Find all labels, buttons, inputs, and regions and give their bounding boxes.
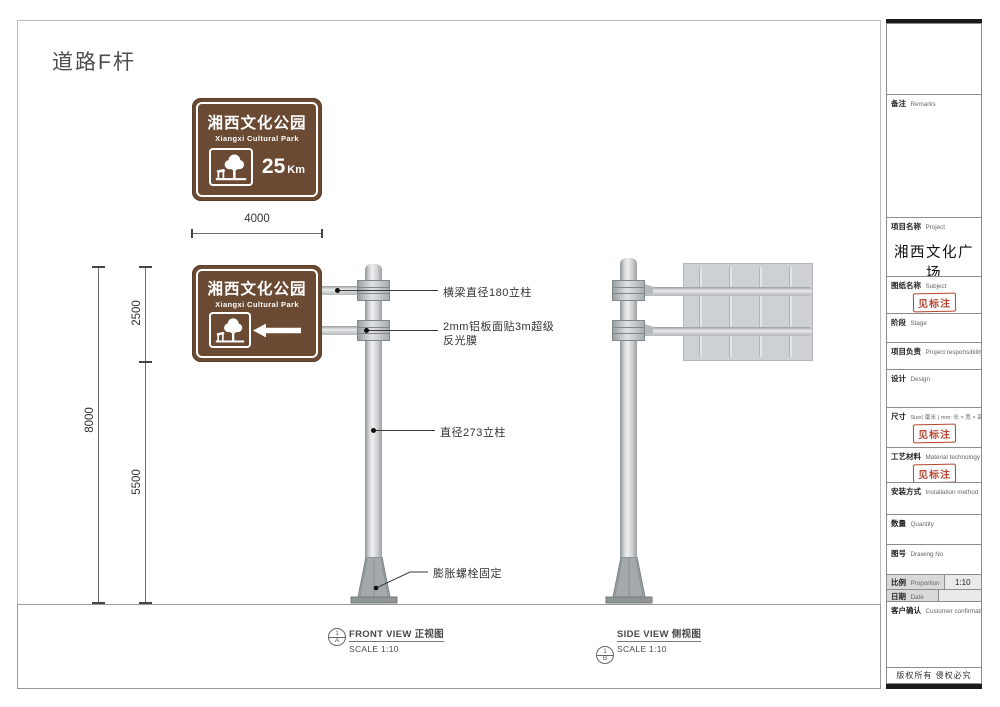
annotation-panel-line2: 反光膜 [443,332,478,348]
panel-rib [699,267,702,357]
side-collar-lower [612,320,645,341]
leader-dot [364,328,369,333]
size-section: 尺寸 Size( 毫米 ) mm: 长 × 宽 × 高 见标注 [886,408,982,448]
side-collar-upper [612,280,645,301]
responsibility-label-zh: 项目负责 [891,347,921,356]
quantity-section: 数量 Quantity [886,515,982,545]
installation-label-en: Installation method [925,489,978,496]
date-row: 日期 Date [886,590,982,602]
leader-panel [366,330,438,331]
stage-label-en: Stage [910,320,926,327]
project-section: 项目名称 Project 湘西文化广场 [886,218,982,277]
design-label-en: Design [910,376,930,383]
leader-pole [375,430,435,431]
responsibility-section: 项目负责 Project responsibility [886,343,982,370]
drawing-no-section: 图号 Drawing No [886,545,982,575]
confirmation-label-zh: 客户确认 [891,606,921,615]
panel-rib [759,267,762,357]
project-name-value: 湘西文化广场 [887,241,981,277]
dim-tick [139,266,152,268]
dim-total-label: 8000 [84,407,96,433]
dim-tick [92,266,105,268]
side-view-name: SIDE VIEW 侧视图 [617,626,701,642]
dim-split-line [145,267,146,604]
quantity-label-en: Quantity [910,521,933,528]
distance: 25 Km [262,155,305,179]
sign-subtitle: Xiangxi Cultural Park [198,134,316,143]
sign-title: 湘西文化公园 [198,277,316,299]
page-title: 道路F杆 [52,46,136,76]
size-label-zh: 尺寸 [891,412,906,421]
dim-width-label: 4000 [192,213,322,225]
tree-bench-icon [212,316,248,346]
front-sign-border: 湘西文化公园 Xiangxi Cultural Park [196,269,318,358]
proportion-label: 比例 Proportion [887,575,945,589]
leader-dot [335,288,340,293]
stage-label-zh: 阶段 [891,318,906,327]
dim-upper-label: 2500 [131,300,143,326]
ground-line-strip [17,604,881,689]
annotation-beam: 横梁直径180立柱 [443,284,532,300]
view-marker-letter: B [597,655,613,662]
leader-base [370,565,432,593]
dim-tick [139,361,152,363]
view-marker-number: 1 [329,630,345,637]
drawing-no-label-zh: 图号 [891,549,906,558]
dim-width-line [192,233,322,234]
left-arrow-icon [253,323,301,338]
title-block-bottom-bar [886,684,982,689]
sign-title: 湘西文化公园 [198,111,316,133]
subject-label-zh: 图纸名称 [891,281,921,290]
distance-value: 25 [262,155,285,179]
copyright-row: 版权所有 侵权必究 [886,668,982,684]
dim-tick [139,602,152,604]
panel-rib [729,267,732,357]
quantity-label-zh: 数量 [891,519,906,528]
side-panel-back [683,263,813,361]
remarks-section: 备注 Remarks [886,95,982,218]
subject-label-en: Subject [925,283,946,290]
park-icon-box [209,148,253,186]
confirmation-label-en: Customer confirmation [925,608,982,615]
logo-box [886,23,982,95]
view-marker-letter: A [329,637,345,644]
leader-dot [371,428,376,433]
panel-rib [789,267,792,357]
front-view-name: FRONT VIEW 正视图 [349,626,444,642]
design-label-zh: 设计 [891,374,906,383]
date-value [939,590,981,601]
confirmation-section: 客户确认 Customer confirmation [886,602,982,668]
side-view-scale: SCALE 1:10 [617,644,701,654]
annotation-pole: 直径273立柱 [440,424,506,440]
detail-sign: 湘西文化公园 Xiangxi Cultural Park [192,98,322,201]
project-label-zh: 项目名称 [891,222,921,231]
side-pole [620,258,637,560]
stage-section: 阶段 Stage [886,314,982,343]
size-label-en: Size( 毫米 ) mm: 长 × 宽 × 高 [910,415,982,421]
sign-subtitle: Xiangxi Cultural Park [198,300,316,309]
detail-sign-border: 湘西文化公园 Xiangxi Cultural Park [196,102,318,197]
drawing-sheet: 道路F杆 湘西文化公园 Xiangxi Cultural Park [0,0,1000,707]
material-label-en: Material technology [925,454,980,461]
proportion-value: 1:10 [945,575,981,589]
park-icon-box [209,312,251,348]
side-beam-upper [645,287,812,296]
view-marker-side: 1 B [596,646,614,664]
leader-beam [337,290,438,291]
remarks-label-en: Remarks [910,101,935,108]
side-view-label: SIDE VIEW 侧视图 SCALE 1:10 [617,626,701,654]
dim-total-line [98,267,99,604]
front-view-sign: 湘西文化公园 Xiangxi Cultural Park [192,265,322,362]
proportion-row: 比例 Proportion 1:10 [886,575,982,590]
dim-tick [191,229,193,238]
subject-stamp: 见标注 [912,293,955,313]
view-marker-number: 1 [597,648,613,655]
dim-tick [321,229,323,238]
annotation-base: 膨胀螺栓固定 [433,565,502,581]
size-stamp: 见标注 [912,424,955,444]
front-view-label: FRONT VIEW 正视图 SCALE 1:10 [349,626,444,654]
side-beam-lower [645,327,812,336]
remarks-label-zh: 备注 [891,99,906,108]
distance-unit: Km [287,164,305,176]
responsibility-label-en: Project responsibility [925,349,982,356]
front-view-scale: SCALE 1:10 [349,644,444,654]
installation-section: 安装方式 Installation method [886,483,982,515]
tree-bench-icon [212,152,250,184]
date-label: 日期 Date [887,590,939,601]
installation-label-zh: 安装方式 [891,487,921,496]
material-label-zh: 工艺材料 [891,452,921,461]
dim-tick [92,602,105,604]
view-marker-front: 1 A [328,628,346,646]
drawing-no-label-en: Drawing No [910,551,943,558]
material-section: 工艺材料 Material technology 见标注 [886,448,982,483]
subject-section: 图纸名称 Subject 见标注 [886,277,982,314]
material-stamp: 见标注 [912,464,955,483]
design-section: 设计 Design [886,370,982,408]
project-label-en: Project [925,224,945,231]
title-block: 备注 Remarks 项目名称 Project 湘西文化广场 图纸名称 Subj… [886,19,982,689]
side-pole-base [599,557,659,604]
dim-lower-label: 5500 [131,469,143,495]
front-pole [365,264,382,560]
